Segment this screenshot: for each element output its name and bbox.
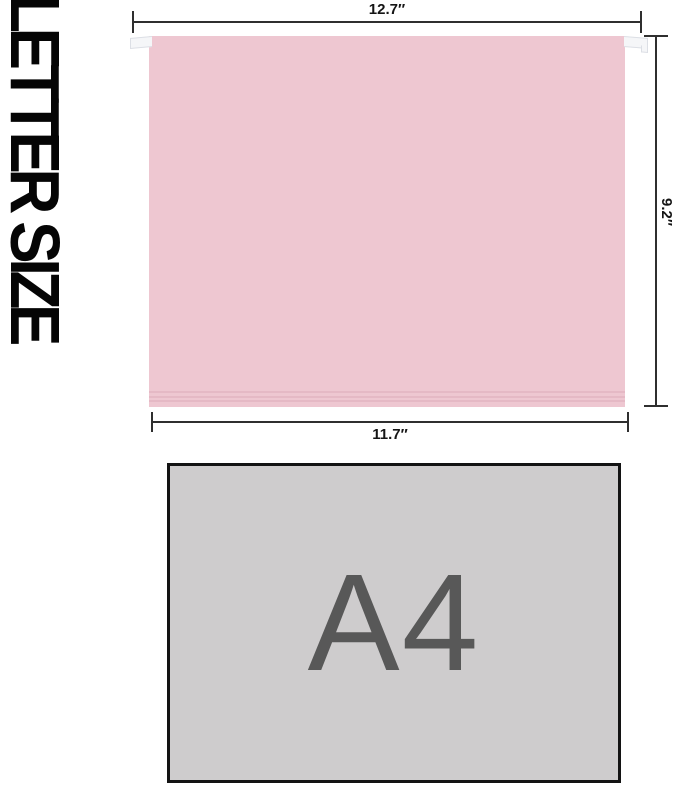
hanging-hook-right — [624, 36, 648, 49]
folder-fold-line — [149, 396, 625, 398]
bottom-width-dimension-line — [151, 421, 629, 423]
folder-fold-line — [149, 391, 625, 393]
height-dimension-line — [655, 35, 657, 407]
height-label: 9.2″ — [658, 198, 675, 226]
top-width-label: 12.7″ — [132, 1, 642, 18]
top-width-dimension-line — [132, 21, 642, 23]
a4-paper: A4 — [167, 463, 621, 783]
letter-size-title: LETTER SIZE — [0, 0, 70, 341]
hanging-hook-left — [130, 36, 152, 49]
a4-label: A4 — [308, 554, 481, 692]
letter-size-diagram: LETTER SIZE 12.7″ 9.2″ 11.7″ A4 — [0, 0, 679, 787]
bottom-width-label: 11.7″ — [151, 426, 629, 443]
pink-hanging-folder — [149, 36, 625, 407]
folder-fold-line — [149, 400, 625, 402]
